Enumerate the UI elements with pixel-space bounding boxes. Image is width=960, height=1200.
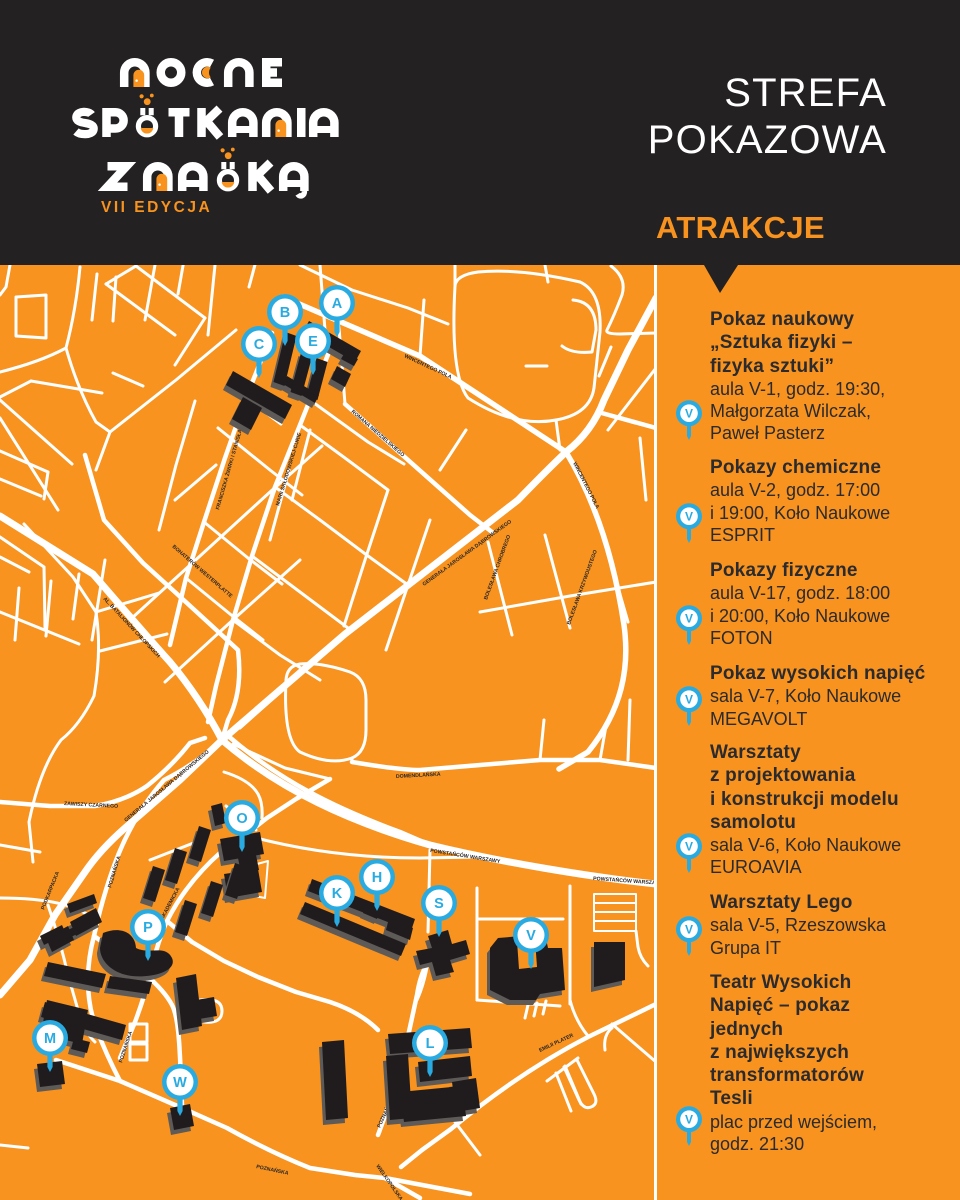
svg-text:W: W: [173, 1075, 187, 1091]
svg-text:L: L: [426, 1036, 435, 1052]
svg-text:V: V: [685, 510, 693, 524]
svg-text:B: B: [280, 305, 290, 321]
svg-text:M: M: [44, 1031, 56, 1047]
svg-text:WINCENTEGO POLA: WINCENTEGO POLA: [403, 353, 453, 380]
svg-text:V: V: [685, 1113, 693, 1127]
svg-text:H: H: [372, 870, 382, 886]
svg-text:V: V: [685, 407, 693, 421]
svg-text:V: V: [685, 612, 693, 626]
svg-text:C: C: [254, 337, 265, 353]
svg-text:POWSTAŃCÓW WARSZAWY: POWSTAŃCÓW WARSZAWY: [593, 874, 657, 887]
svg-text:V: V: [526, 928, 536, 944]
svg-text:E: E: [308, 334, 318, 350]
svg-text:O: O: [236, 811, 247, 827]
svg-text:VII EDYCJA: VII EDYCJA: [101, 199, 212, 216]
svg-text:V: V: [685, 923, 693, 937]
svg-text:V: V: [685, 840, 693, 854]
svg-text:S: S: [434, 896, 444, 912]
svg-text:P: P: [143, 920, 153, 936]
svg-text:K: K: [332, 886, 343, 902]
svg-text:GENERAŁA JAROSŁAWA DĄBROWSKIEG: GENERAŁA JAROSŁAWA DĄBROWSKIEGO: [123, 749, 210, 823]
svg-text:EMILII PLATER: EMILII PLATER: [538, 1033, 574, 1054]
svg-text:BOLESŁAWA KRZYWOUSTEGO: BOLESŁAWA KRZYWOUSTEGO: [566, 549, 599, 625]
svg-text:POZNAŃSKA: POZNAŃSKA: [256, 1162, 290, 1177]
svg-text:POZNAŃSKA: POZNAŃSKA: [105, 855, 122, 889]
svg-text:V: V: [685, 693, 693, 707]
svg-text:WINCENTEGO POLA: WINCENTEGO POLA: [571, 461, 600, 510]
svg-text:A: A: [332, 296, 343, 312]
